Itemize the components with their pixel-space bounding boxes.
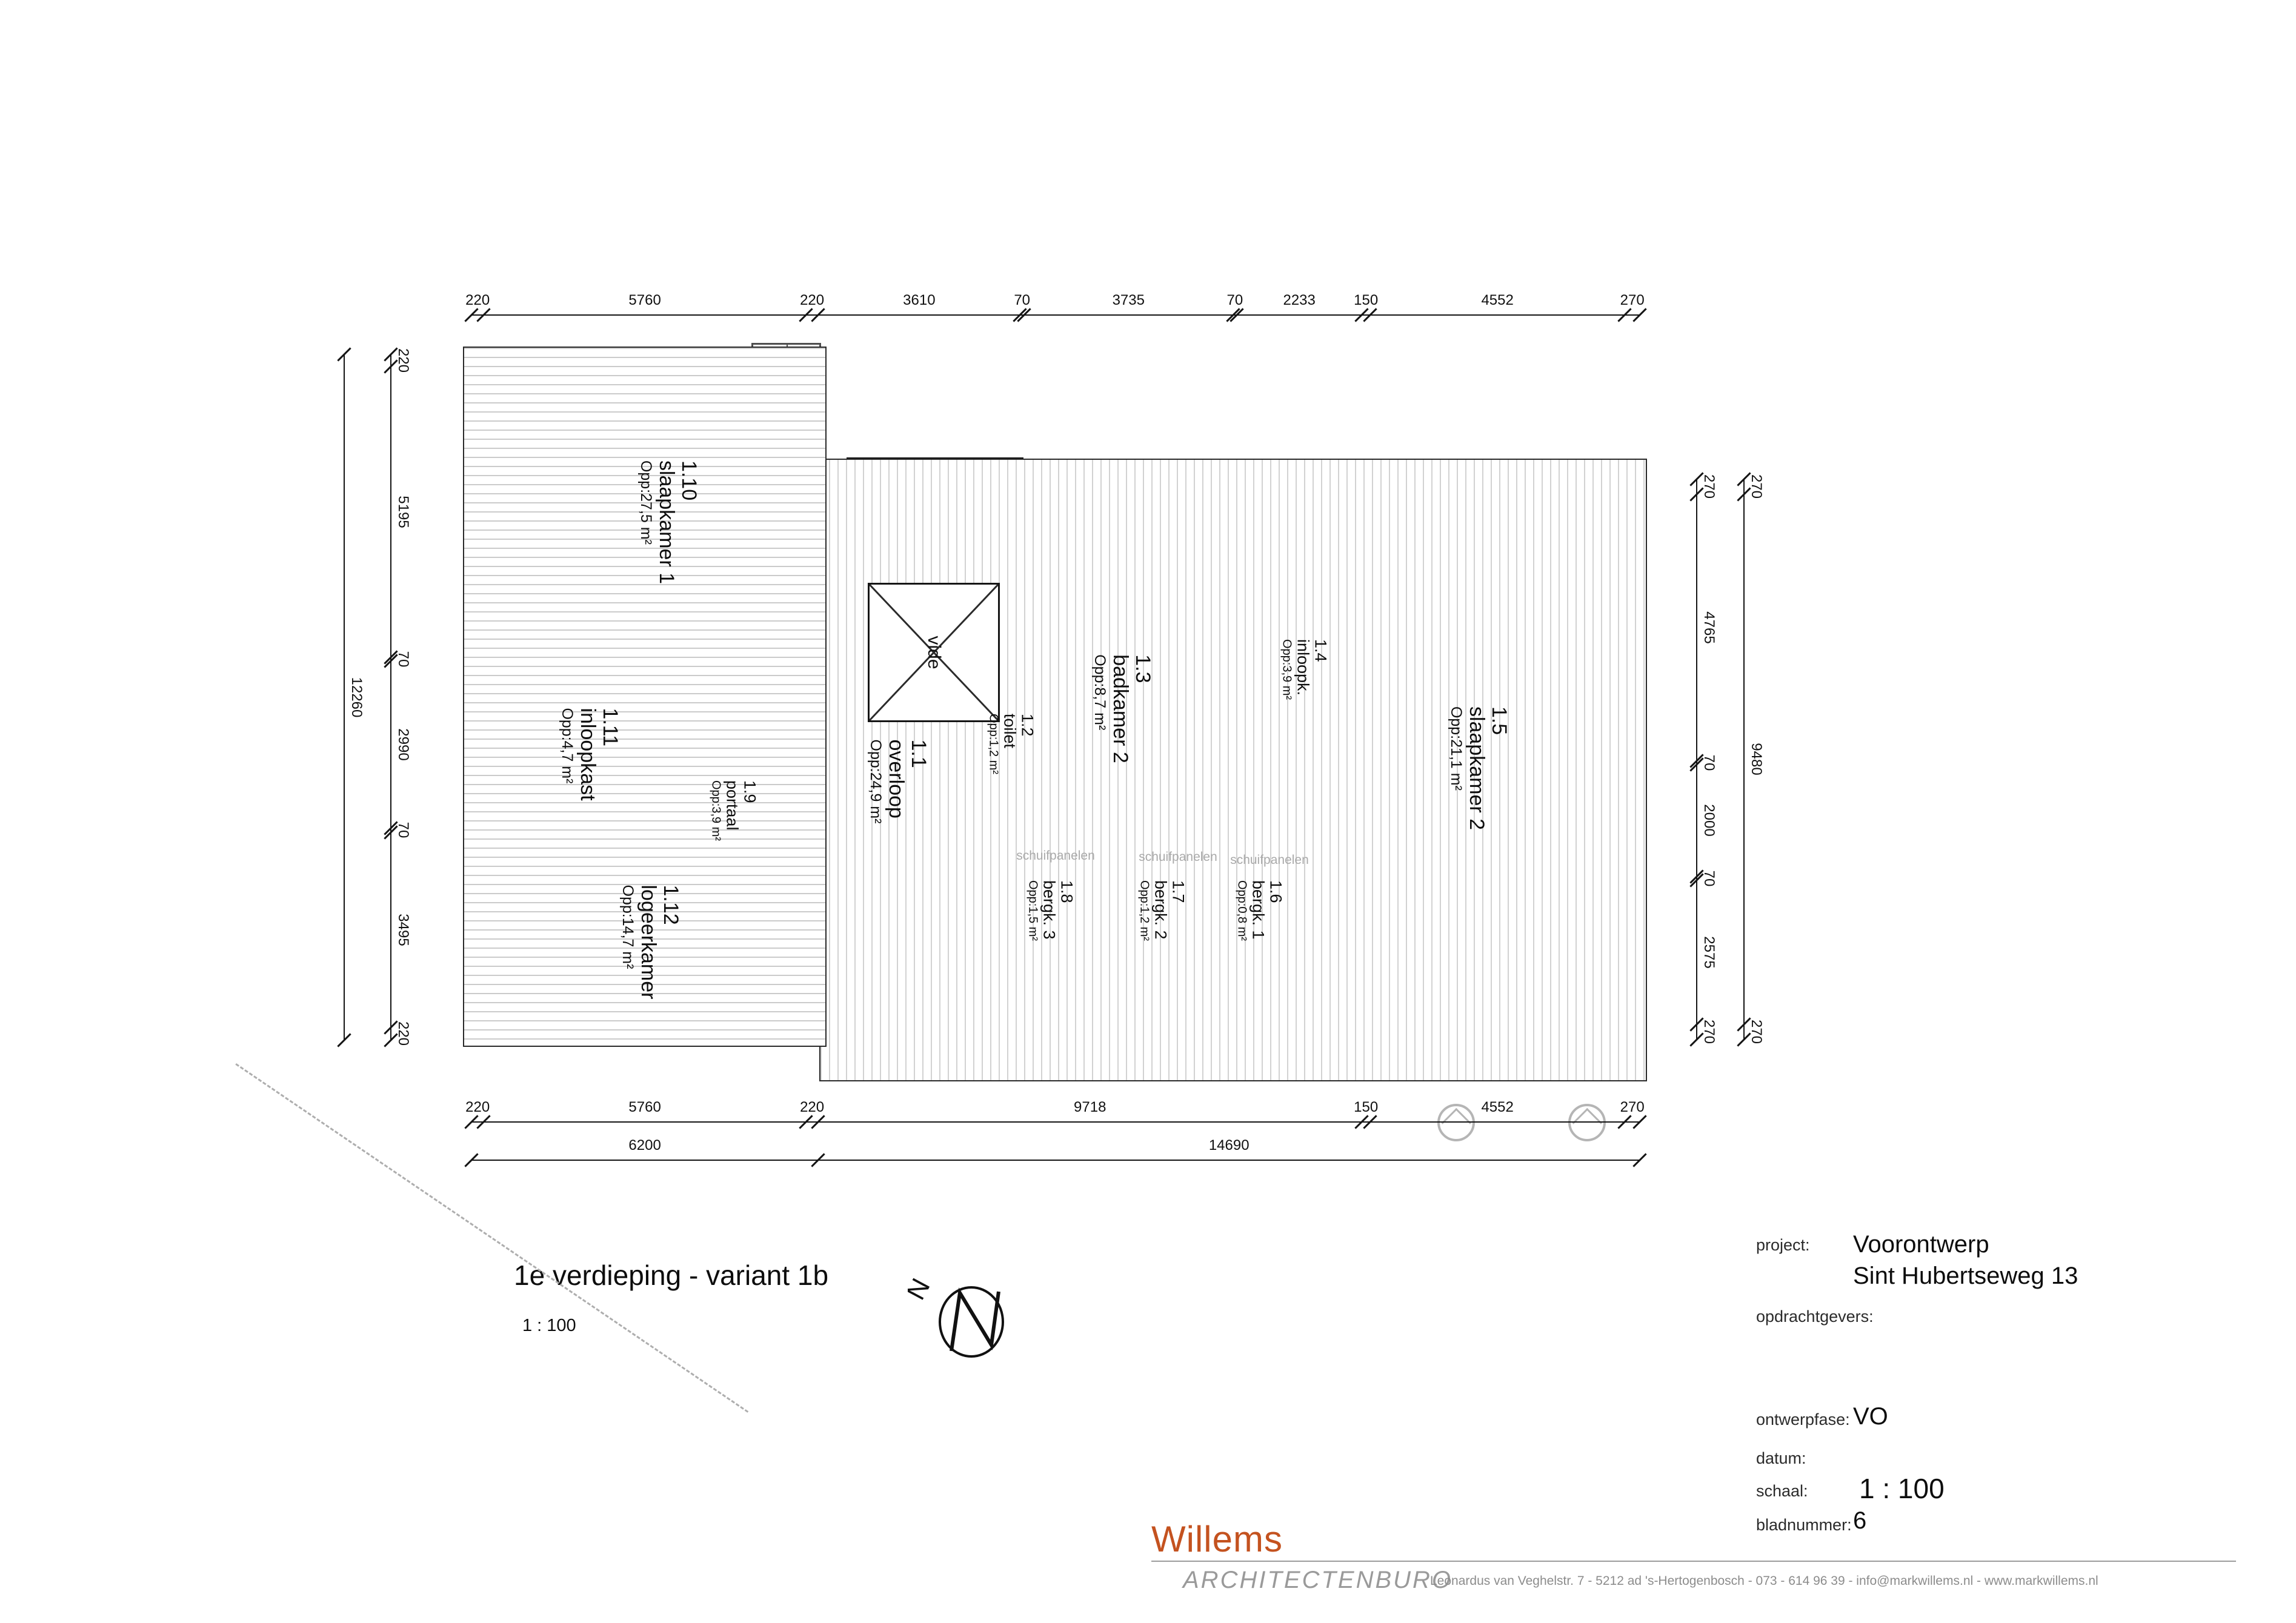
room-label-toilet: 1.2 toilet Opp:1,2 m²: [986, 714, 1036, 774]
footer-divider: [1151, 1561, 2236, 1562]
phase-value: VO: [1853, 1403, 1888, 1430]
phase-label: ontwerpfase:: [1756, 1410, 1850, 1429]
dimension-value: 270: [1700, 1020, 1717, 1044]
room-name: inloopkast: [576, 708, 599, 800]
room-number: 1.1: [907, 740, 930, 824]
dimension-line: [471, 1160, 1640, 1161]
dimension-value: 270: [1620, 292, 1645, 309]
dimension-value: 70: [1700, 755, 1717, 771]
room-label-bergkast-1: 1.6 bergk. 1 Opp:0,8 m²: [1234, 880, 1285, 941]
dimension-value: 9718: [1074, 1099, 1106, 1116]
room-label-inloopkast: 1.11 inloopkast Opp:4,7 m²: [558, 708, 621, 800]
logo-architectenburo: ARCHITECTENBURO: [1183, 1567, 1452, 1594]
room-number: 1.7: [1170, 880, 1187, 941]
dimension-value: 2000: [1700, 805, 1717, 837]
project-address: Sint Hubertseweg 13: [1853, 1260, 2078, 1292]
dimension-value: 3610: [903, 292, 935, 309]
dimension-value: 70: [1227, 292, 1243, 309]
dimension-value: 2575: [1700, 936, 1717, 968]
room-number: 1.4: [1312, 639, 1329, 700]
room-area: Opp:1,2 m²: [1137, 880, 1152, 941]
dimension-line: [1743, 479, 1745, 1040]
room-label-bergkast-2: 1.7 bergk. 2 Opp:1,2 m²: [1137, 880, 1187, 941]
dimension-value: 270: [1700, 474, 1717, 499]
dimension-line: [471, 1121, 1640, 1123]
plan-title: 1e verdieping - variant 1b: [514, 1259, 828, 1292]
dimension-value: 5195: [394, 496, 411, 528]
dimension-value: 220: [394, 1021, 411, 1046]
dimension-line: [344, 354, 345, 1040]
room-name: inloopk.: [1294, 639, 1312, 700]
room-area: Opp:3,9 m²: [708, 780, 724, 841]
sheetnumber-value: 6: [1853, 1507, 1866, 1535]
dimension-value: 2990: [394, 729, 411, 761]
room-label-badkamer-2: 1.3 badkamer 2 Opp:8,7 m²: [1091, 654, 1154, 763]
scale-label: schaal:: [1756, 1482, 1808, 1501]
dimension-value: 220: [800, 292, 824, 309]
room-area: Opp:14,7 m²: [619, 885, 637, 1000]
schuifpanelen-label: schuifpanelen: [1139, 850, 1217, 865]
room-label-logeerkamer: 1.12 logeerkamer Opp:14,7 m²: [619, 885, 682, 1000]
plan-scale: 1 : 100: [522, 1316, 576, 1336]
room-label-portaal: 1.9 portaal Opp:3,9 m²: [708, 780, 759, 841]
dimension-value: 70: [394, 651, 411, 668]
dimension-value: 4552: [1481, 292, 1513, 309]
dimension-value: 220: [465, 1099, 490, 1116]
room-area: Opp:21,1 m²: [1447, 706, 1465, 830]
dimension-value: 2233: [1283, 292, 1315, 309]
room-number: 1.6: [1267, 880, 1285, 941]
drain-symbol: [1568, 1104, 1606, 1141]
dimension-value: 150: [1354, 1099, 1378, 1116]
room-area: Opp:24,9 m²: [867, 740, 885, 824]
dimension-value: 6200: [628, 1137, 661, 1154]
room-area: Opp:27,5 m²: [637, 460, 655, 584]
schuifpanelen-label: schuifpanelen: [1230, 853, 1309, 868]
dimension-value: 150: [1354, 292, 1378, 309]
room-name: toilet: [1001, 714, 1019, 774]
dimension-value: 220: [394, 348, 411, 373]
room-label-inloopk: 1.4 inloopk. Opp:3,9 m²: [1279, 639, 1329, 700]
room-number: 1.10: [677, 460, 700, 584]
drain-symbol: [1437, 1104, 1475, 1141]
room-area: Opp:4,7 m²: [558, 708, 576, 800]
room-area: Opp:8,7 m²: [1091, 654, 1109, 763]
room-name: bergk. 3: [1040, 880, 1058, 941]
project-label: project:: [1756, 1236, 1810, 1255]
dimension-value: 14690: [1209, 1137, 1249, 1154]
dimension-value: 5760: [628, 292, 661, 309]
room-label-slaapkamer-1: 1.10 slaapkamer 1 Opp:27,5 m²: [637, 460, 700, 584]
sheetnumber-label: bladnummer:: [1756, 1516, 1852, 1535]
dimension-value: 4765: [1700, 611, 1717, 643]
room-number: 1.9: [741, 780, 759, 841]
room-label-overloop: 1.1 overloop Opp:24,9 m²: [867, 740, 930, 824]
room-label-bergkast-3: 1.8 bergk. 3 Opp:1,5 m²: [1025, 880, 1076, 941]
room-number: 1.5: [1488, 706, 1510, 830]
footer-address: Leonardus van Veghelstr. 7 - 5212 ad 's-…: [1430, 1574, 2098, 1588]
dimension-value: 220: [800, 1099, 824, 1116]
room-name: bergk. 1: [1249, 880, 1267, 941]
room-name: portaal: [724, 780, 741, 841]
dimension-value: 70: [394, 822, 411, 838]
dimension-value: 70: [1700, 871, 1717, 887]
dimension-line: [390, 354, 391, 1040]
room-name: slaapkamer 2: [1465, 706, 1488, 830]
vide-label: vide: [923, 636, 944, 669]
fold-line: [235, 1063, 748, 1413]
room-area: Opp:0,8 m²: [1234, 880, 1249, 941]
drawing-sheet: vide 1.10 slaapkamer 1 Opp:27,5 m² 1.11 …: [0, 0, 2296, 1623]
date-label: datum:: [1756, 1449, 1806, 1468]
room-name: overloop: [885, 740, 907, 824]
room-number: 1.3: [1131, 654, 1154, 763]
vide-box: vide: [868, 583, 1000, 722]
project-name: Voorontwerp: [1853, 1229, 2078, 1260]
room-area: Opp:1,2 m²: [986, 714, 1001, 774]
dimension-value: 270: [1620, 1099, 1645, 1116]
logo-willems: Willems: [1151, 1518, 1283, 1560]
dimension-value: 270: [1748, 1020, 1765, 1044]
room-area: Opp:1,5 m²: [1025, 880, 1040, 941]
dimension-value: 220: [465, 292, 490, 309]
room-area: Opp:3,9 m²: [1279, 639, 1294, 700]
clients-label: opdrachtgevers:: [1756, 1307, 1874, 1326]
room-name: logeerkamer: [637, 885, 659, 1000]
room-name: badkamer 2: [1109, 654, 1131, 763]
right-wing-floor: [819, 459, 1647, 1081]
north-letter: N: [908, 1273, 936, 1304]
room-number: 1.12: [659, 885, 682, 1000]
room-label-slaapkamer-2: 1.5 slaapkamer 2 Opp:21,1 m²: [1447, 706, 1510, 830]
north-arrow-icon: N: [908, 1271, 1011, 1362]
dimension-value: 3495: [394, 914, 411, 946]
dimension-value: 3735: [1113, 292, 1145, 309]
room-number: 1.2: [1019, 714, 1036, 774]
room-name: bergk. 2: [1152, 880, 1170, 941]
dimension-value: 70: [1014, 292, 1030, 309]
dimension-value: 270: [1748, 474, 1765, 499]
dimension-value: 12260: [348, 677, 365, 717]
scale-value: 1 : 100: [1859, 1472, 1945, 1505]
dimension-value: 9480: [1748, 743, 1765, 775]
room-name: slaapkamer 1: [655, 460, 677, 584]
dimension-value: 5760: [628, 1099, 661, 1116]
room-number: 1.11: [599, 708, 621, 800]
project-value: Voorontwerp Sint Hubertseweg 13: [1853, 1229, 2078, 1292]
dimension-value: 4552: [1481, 1099, 1513, 1116]
schuifpanelen-label: schuifpanelen: [1016, 849, 1095, 863]
dimension-line: [471, 314, 1640, 316]
room-number: 1.8: [1058, 880, 1076, 941]
